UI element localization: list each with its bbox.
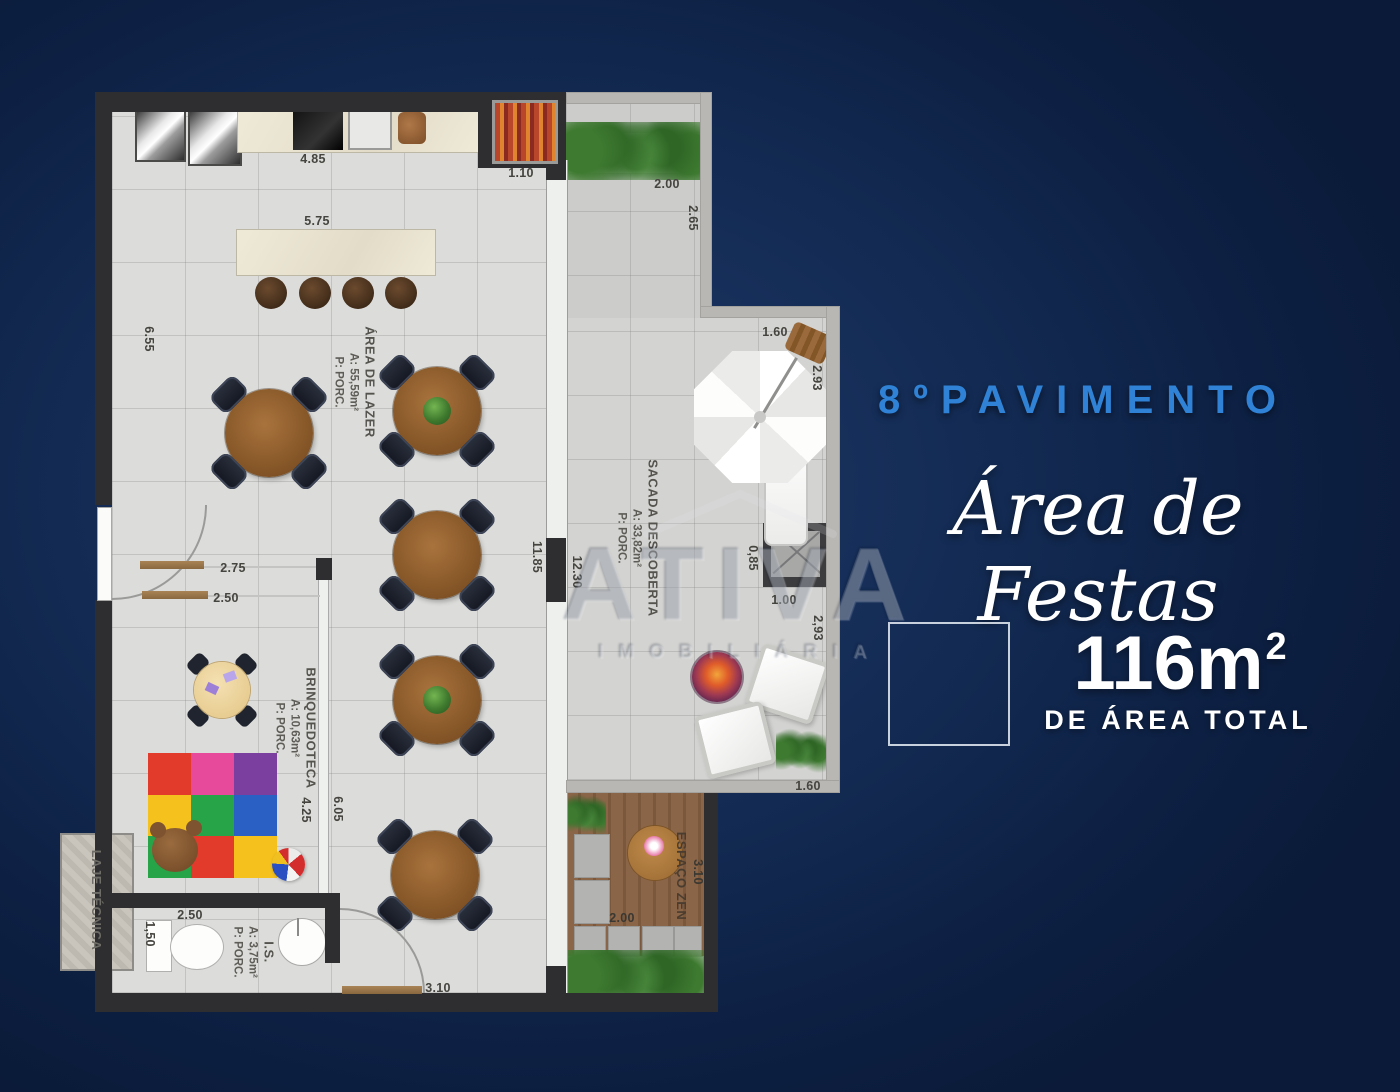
room-name: LAJE TÉCNICA bbox=[87, 850, 105, 951]
beach-ball-icon bbox=[272, 848, 305, 881]
kids-table bbox=[188, 656, 256, 724]
partition-track bbox=[318, 578, 329, 893]
room-label-area-lazer: ÁREA DE LAZER A: 55,59m² P: PORC. bbox=[330, 326, 379, 437]
room-finish: P: PORC. bbox=[330, 326, 346, 437]
wall-partition-post bbox=[316, 558, 332, 580]
room-area: A: 55,59m² bbox=[345, 326, 361, 437]
dining-table bbox=[378, 496, 496, 614]
flower-dish-icon bbox=[644, 836, 664, 856]
room-label-brinquedoteca: BRINQUEDOTECA A: 10,63m² P: PORC. bbox=[271, 667, 320, 788]
kids-table-top bbox=[194, 662, 250, 718]
barbecue-grill-icon bbox=[492, 100, 558, 164]
glass-post bbox=[546, 538, 566, 602]
dim-opening-bottom: 2.50 bbox=[213, 591, 239, 605]
room-label-zen: ESPAÇO ZEN bbox=[672, 832, 690, 921]
area-script-title: Área de Festas bbox=[848, 466, 1348, 638]
plant-icon bbox=[423, 397, 451, 425]
wall-zen-right bbox=[704, 788, 718, 1012]
plant-icon bbox=[423, 686, 451, 714]
room-finish: P: PORC. bbox=[613, 459, 629, 616]
room-name: BRINQUEDOTECA bbox=[302, 667, 320, 788]
bar-stool bbox=[255, 277, 287, 309]
dim-bottom-door: 3.10 bbox=[425, 981, 451, 995]
room-name: I.S. bbox=[260, 926, 278, 978]
dim-bath-width: 2.50 bbox=[177, 908, 203, 922]
room-finish: P: PORC. bbox=[271, 667, 287, 788]
dim-room-len-outer: 6.05 bbox=[331, 796, 345, 822]
fire-pit-icon bbox=[692, 652, 742, 702]
dining-table bbox=[378, 641, 496, 759]
glass-post bbox=[546, 966, 566, 993]
dim-grill: 1.10 bbox=[508, 166, 534, 180]
dim-counter: 4.85 bbox=[300, 152, 326, 166]
dining-table bbox=[378, 352, 496, 470]
room-finish: P: PORC. bbox=[229, 926, 245, 978]
paver bbox=[574, 880, 610, 924]
dim-glass-inner: 11.85 bbox=[530, 541, 544, 573]
mat-tile bbox=[148, 753, 191, 795]
bathroom-door-leaf bbox=[342, 986, 422, 994]
room-name: SACADA DESCOBERTA bbox=[644, 459, 662, 616]
bar-stool bbox=[299, 277, 331, 309]
dim-island: 5.75 bbox=[304, 214, 330, 228]
wall-bathroom-right bbox=[325, 893, 340, 963]
island-counter bbox=[237, 230, 435, 275]
toilet-icon bbox=[170, 924, 224, 970]
marketing-poster: ÁREA DE LAZER A: 55,59m² P: PORC. BRINQU… bbox=[0, 0, 1400, 1092]
dim-zen-width: 2.00 bbox=[609, 911, 635, 925]
bar-stool bbox=[342, 277, 374, 309]
total-area-value: 116m2 bbox=[1030, 620, 1330, 707]
cooktop-icon bbox=[293, 108, 343, 150]
room-label-sacada: SACADA DESCOBERTA A: 33,82m² P: PORC. bbox=[613, 459, 662, 616]
sink-icon bbox=[348, 108, 392, 150]
wall-top bbox=[95, 92, 480, 112]
plants-icon bbox=[566, 122, 712, 180]
dim-left-wall: 6.55 bbox=[142, 326, 156, 352]
dim-umbrella-right: 2.93 bbox=[810, 365, 824, 391]
dim-ac-side: 0,85 bbox=[746, 545, 760, 571]
dining-table bbox=[210, 374, 328, 492]
teddy-ear bbox=[186, 820, 202, 836]
mat-tile bbox=[191, 836, 234, 878]
area-number: 116m bbox=[1073, 621, 1263, 706]
dim-zen-depth: 3.10 bbox=[691, 859, 705, 885]
wall-left-upper bbox=[95, 92, 112, 505]
room-area: A: 10,63m² bbox=[286, 667, 302, 788]
balcony-wall-right-upper bbox=[700, 92, 712, 318]
sliding-door bbox=[140, 561, 204, 569]
balcony-wall-step bbox=[700, 306, 840, 318]
dim-balcony-right: 2.65 bbox=[686, 205, 700, 231]
cutting-board-icon bbox=[398, 112, 426, 144]
dim-bath-depth: 1,50 bbox=[143, 921, 157, 947]
dim-umbrella-top: 1.60 bbox=[762, 325, 788, 339]
umbrella-hub bbox=[754, 411, 766, 423]
room-name: ÁREA DE LAZER bbox=[361, 326, 379, 437]
mat-tile bbox=[191, 753, 234, 795]
sliding-door bbox=[142, 591, 208, 599]
plant-icon bbox=[566, 790, 606, 840]
dim-balcony-top: 2.00 bbox=[654, 177, 680, 191]
teddy-ear bbox=[150, 822, 166, 838]
fridge-icon bbox=[135, 110, 186, 162]
paver bbox=[574, 834, 610, 878]
floor-title: 8ºPAVIMENTO bbox=[878, 378, 1348, 423]
mat-tile bbox=[234, 836, 277, 878]
dim-opening-top: 2.75 bbox=[220, 561, 246, 575]
dim-ac-front: 1.00 bbox=[771, 593, 797, 607]
room-name: ESPAÇO ZEN bbox=[672, 832, 690, 921]
total-area-caption: DE ÁREA TOTAL bbox=[1018, 705, 1338, 736]
dim-glass-outer: 12.30 bbox=[570, 556, 584, 589]
outline-square bbox=[888, 622, 1010, 746]
bar-stool bbox=[385, 277, 417, 309]
room-area: A: 33,82m² bbox=[628, 459, 644, 616]
dining-table bbox=[376, 816, 494, 934]
dim-room-len-inner: 4.25 bbox=[299, 797, 313, 823]
mat-tile bbox=[234, 795, 277, 837]
dim-lounge-bottom: 1.60 bbox=[795, 779, 821, 793]
entry-door-leaf bbox=[97, 507, 112, 601]
room-label-laje: LAJE TÉCNICA bbox=[87, 850, 105, 951]
balcony-wall-top bbox=[566, 92, 712, 104]
room-area: A: 3,75m² bbox=[244, 926, 260, 978]
wall-bottom bbox=[95, 993, 718, 1012]
balcony-wall-right bbox=[826, 306, 840, 793]
area-exponent: 2 bbox=[1266, 626, 1287, 668]
room-label-banheiro: I.S. A: 3,75m² P: PORC. bbox=[229, 926, 278, 978]
dim-lounge-right: 2,93 bbox=[811, 615, 825, 641]
sink-icon bbox=[278, 918, 326, 966]
faucet-icon bbox=[297, 918, 299, 936]
wall-bathroom-top bbox=[112, 893, 325, 908]
freezer-icon bbox=[188, 110, 242, 166]
plant-icon bbox=[776, 728, 826, 774]
